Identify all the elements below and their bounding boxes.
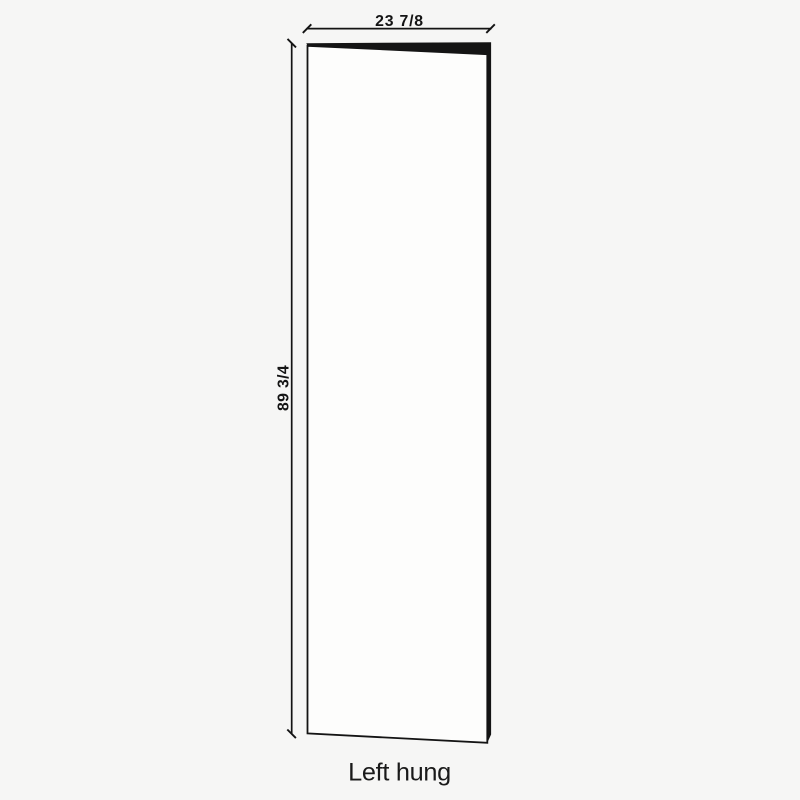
svg-text:Left hung: Left hung [348,759,451,787]
svg-text:89 3/4: 89 3/4 [276,365,293,411]
svg-text:23 7/8: 23 7/8 [375,13,424,30]
